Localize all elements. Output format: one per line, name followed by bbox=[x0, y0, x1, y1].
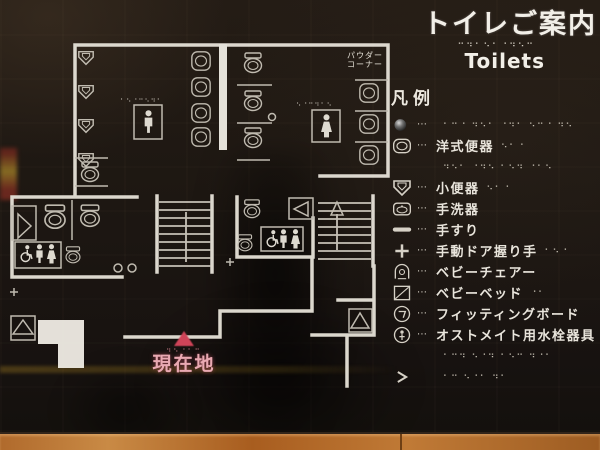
legend-dots: ⋯ bbox=[417, 266, 432, 277]
toilet-icon bbox=[192, 128, 210, 146]
male-figure-icon bbox=[36, 244, 42, 263]
legend-dots: ⋯ bbox=[417, 287, 432, 298]
toilet-icon bbox=[244, 200, 259, 218]
sign-title: トイレご案内 bbox=[423, 2, 597, 41]
current-location-marker: ⠲⠢⠐⠂⠒ 現在地 bbox=[146, 331, 222, 374]
current-location-triangle-icon bbox=[174, 331, 194, 346]
legend-item-braille: ⠢⠂⠐ bbox=[487, 183, 511, 193]
legend-item-label: 手すり bbox=[436, 220, 480, 239]
legend-icon bbox=[391, 346, 413, 366]
legend-dots: ⋯ bbox=[417, 308, 432, 319]
map-braille: ⠢⠐⠒⠲⠂⠢ bbox=[296, 100, 333, 108]
elevator-icon bbox=[289, 198, 313, 219]
toilet-icon bbox=[192, 104, 210, 122]
legend-dots: ⋯ bbox=[417, 224, 432, 235]
toilet-icon bbox=[245, 128, 262, 148]
ostomate-icon bbox=[391, 325, 413, 345]
stairs-icon bbox=[318, 202, 371, 259]
door-grip-icon bbox=[391, 241, 413, 261]
legend-item: ⋯ オストメイト用水栓器具 bbox=[391, 324, 599, 345]
legend-item: ⋯ 手すり bbox=[391, 219, 599, 240]
legend-item-label: ベビーベッド bbox=[436, 283, 523, 302]
legend-item: ⋯ 洋式便器 ⠢⠂⠐ bbox=[391, 135, 599, 156]
legend-list: ⋯ ⠂⠒⠐ ⠲⠢⠂ ⠐⠲⠂ ⠢⠒⠐ ⠲⠢ ⋯ 洋式便器 ⠢⠂⠐ ⠲⠢⠂ ⠐⠲⠢ … bbox=[391, 114, 599, 387]
legend-item: ⋯ 手動ドア握り手 ⠂⠢⠐ bbox=[391, 240, 599, 261]
up-arrow-icon bbox=[331, 202, 343, 215]
legend-dots: ⋯ bbox=[417, 182, 432, 193]
legend-item: ⋯ ベビーベッド ⠐⠂ bbox=[391, 282, 599, 303]
legend-item-braille: ⠐⠂ bbox=[530, 288, 546, 298]
wheelchair-icon bbox=[267, 230, 278, 246]
toilet-icon bbox=[192, 52, 210, 70]
sign-title-english: Toilets bbox=[423, 50, 597, 72]
legend-item-braille: ⠲⠢⠂ ⠐⠲⠢ ⠂⠢⠲ ⠐⠂⠢ bbox=[443, 162, 553, 172]
wood-frame-bottom bbox=[0, 432, 600, 450]
urinal-icon bbox=[79, 154, 93, 167]
toilet-icon bbox=[81, 205, 100, 226]
legend-item: ⠲⠢⠂ ⠐⠲⠢ ⠂⠢⠲ ⠐⠂⠢ bbox=[391, 156, 599, 177]
toilet-icon bbox=[192, 78, 210, 96]
legend-item-label: 洋式便器 bbox=[436, 136, 494, 155]
western-toilet-icon bbox=[391, 136, 413, 156]
legend-item: ⋯ 手洗器 bbox=[391, 198, 599, 219]
legend-item: ⋯ 小便器 ⠢⠂⠐ bbox=[391, 177, 599, 198]
door-grip-mark bbox=[10, 288, 18, 296]
female-figure-icon bbox=[47, 244, 56, 263]
toilet-icon bbox=[45, 205, 65, 228]
female-figure-icon bbox=[291, 229, 300, 248]
powder-corner-label: パウダー コーナー bbox=[347, 51, 383, 69]
elevator-icon bbox=[11, 316, 35, 340]
legend-item-braille: ⠂⠒⠲ ⠢⠐⠲ ⠂⠢⠒ ⠲⠐⠂ bbox=[443, 351, 553, 361]
toilet-icon bbox=[238, 235, 252, 251]
baby-chair-icon bbox=[391, 262, 413, 282]
legend-item-braille: ⠂⠒⠐ ⠲⠢⠂ ⠐⠲⠂ ⠢⠒⠐ ⠲⠢ bbox=[443, 120, 574, 130]
legend-heading: 凡例 bbox=[391, 84, 599, 109]
elevator-icon bbox=[349, 309, 372, 332]
handrail-icon bbox=[391, 220, 413, 240]
solid-block bbox=[38, 320, 84, 368]
current-location-label: 現在地 bbox=[146, 354, 222, 374]
elevator-icon bbox=[12, 206, 36, 240]
urinal-icon bbox=[79, 120, 93, 133]
legend-item-braille: ⠢⠂⠐ bbox=[501, 141, 525, 151]
stairs-icon bbox=[159, 202, 211, 266]
urinal-icon bbox=[79, 52, 93, 65]
legend-item: ⋯ フィッティングボード bbox=[391, 303, 599, 324]
legend-item-label: オストメイト用水栓器具 bbox=[436, 325, 596, 344]
chevron-icon bbox=[391, 367, 413, 387]
toilet-icon bbox=[66, 247, 80, 263]
sphere-icon bbox=[391, 115, 413, 135]
fitting-board-icon bbox=[391, 304, 413, 324]
legend-item-label: 小便器 bbox=[436, 178, 480, 197]
legend-item-label: フィッティングボード bbox=[436, 304, 580, 323]
female-figure-icon bbox=[321, 114, 332, 137]
toilet-icon bbox=[360, 115, 378, 133]
legend-icon bbox=[391, 157, 413, 177]
legend-item-label: ベビーチェアー bbox=[436, 262, 537, 281]
legend-item-braille: ⠂⠢⠐ bbox=[545, 246, 569, 256]
toilet-icon bbox=[245, 53, 262, 73]
legend-dots: ⋯ bbox=[417, 203, 432, 214]
legend-dots: ⋯ bbox=[417, 140, 432, 151]
legend-item: ⋯ ベビーチェアー bbox=[391, 261, 599, 282]
male-figure-icon bbox=[145, 110, 153, 133]
door-grip-mark bbox=[226, 258, 234, 266]
map-braille: ⠂⠢⠐⠒⠢⠲⠂ bbox=[120, 96, 163, 104]
legend-item: ⠂⠒ ⠢⠐⠂ ⠲⠂ bbox=[391, 366, 599, 387]
title-block: トイレご案内 ⠒⠲⠂⠢⠂⠐⠲⠢⠒ Toilets bbox=[423, 2, 597, 72]
legend-dots: ⋯ bbox=[417, 245, 432, 256]
toilet-guide-sign-photo: ⠂⠢⠐⠒⠢⠲⠂ ⠢⠐⠒⠲⠂⠢ bbox=[0, 0, 600, 450]
toilet-icon bbox=[360, 146, 378, 164]
toilet-icon bbox=[360, 84, 378, 102]
wheelchair-icon bbox=[21, 245, 32, 261]
legend-dots: ⋯ bbox=[417, 329, 432, 340]
sink-icon bbox=[391, 199, 413, 219]
male-figure-icon bbox=[280, 229, 286, 248]
urinal-icon bbox=[79, 86, 93, 99]
legend-item-braille: ⠂⠒ ⠢⠐⠂ ⠲⠂ bbox=[443, 372, 508, 382]
wood-frame-seam bbox=[400, 434, 402, 450]
legend-item: ⋯ ⠂⠒⠐ ⠲⠢⠂ ⠐⠲⠂ ⠢⠒⠐ ⠲⠢ bbox=[391, 114, 599, 135]
legend-dots: ⋯ bbox=[417, 119, 432, 130]
urinal-icon bbox=[391, 178, 413, 198]
baby-bed-icon bbox=[391, 283, 413, 303]
legend-item: ⠂⠒⠲ ⠢⠐⠲ ⠂⠢⠒ ⠲⠐⠂ bbox=[391, 345, 599, 366]
legend-panel: 凡例 ⋯ ⠂⠒⠐ ⠲⠢⠂ ⠐⠲⠂ ⠢⠒⠐ ⠲⠢ ⋯ 洋式便器 ⠢⠂⠐ ⠲⠢⠂ ⠐… bbox=[391, 84, 599, 387]
legend-item-label: 手動ドア握り手 bbox=[436, 241, 538, 260]
toilet-icon bbox=[245, 91, 262, 111]
legend-item-label: 手洗器 bbox=[436, 199, 480, 218]
